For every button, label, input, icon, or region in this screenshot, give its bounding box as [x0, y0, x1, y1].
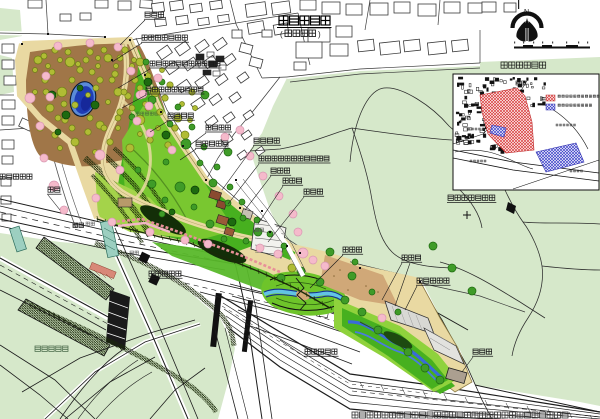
svg-text:(: ( — [280, 30, 283, 39]
svg-text:): ) — [318, 30, 321, 39]
